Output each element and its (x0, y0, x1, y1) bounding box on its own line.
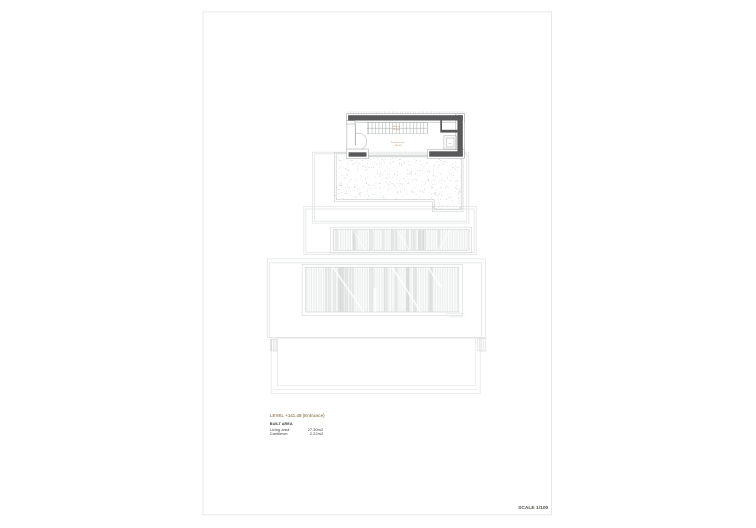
svg-text:Entrance hall: Entrance hall (391, 141, 404, 144)
svg-text:2.22m2: 2.22m2 (310, 431, 324, 436)
svg-text:LEVEL +141.48 (Entrance): LEVEL +141.48 (Entrance) (270, 413, 325, 418)
svg-text:18 risers: 18 risers (393, 128, 400, 131)
svg-text:BUILT AREA: BUILT AREA (270, 422, 293, 426)
svg-text:Stairs up: Stairs up (393, 125, 400, 128)
svg-text:SCALE 1/100: SCALE 1/100 (518, 505, 548, 511)
svg-text:+141.48: +141.48 (394, 145, 403, 147)
svg-text:Cantilever: Cantilever (270, 431, 289, 436)
